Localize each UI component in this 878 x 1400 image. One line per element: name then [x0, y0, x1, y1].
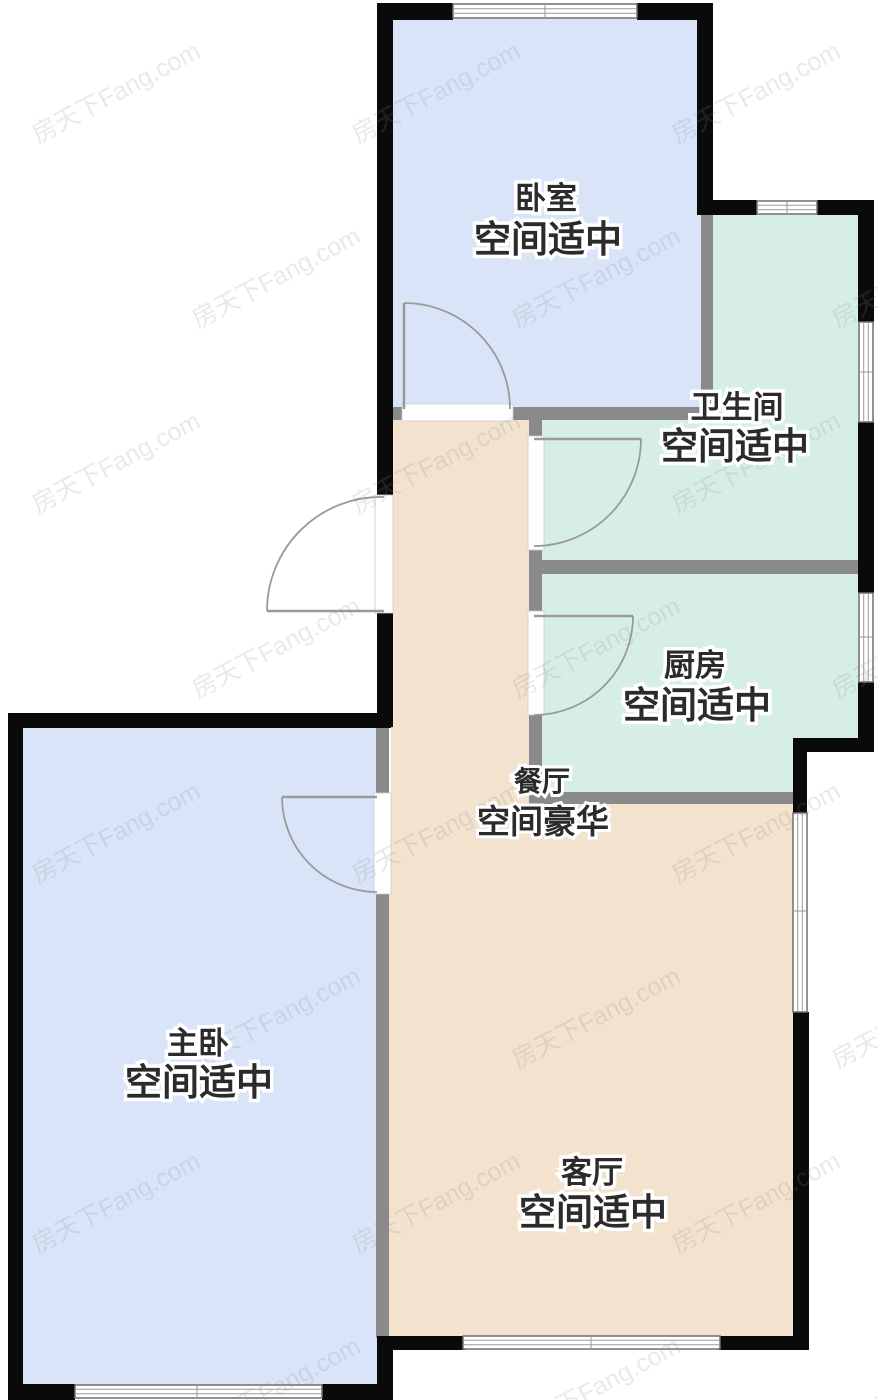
kitchen-label: 厨房	[664, 648, 726, 683]
floor-plan-page: 房天下Fang.com房天下Fang.com房天下Fang.com房天下Fang…	[0, 0, 878, 1400]
living-size-label: 空间适中	[519, 1192, 667, 1233]
watermark-text: 房天下Fang.com	[187, 592, 365, 704]
kitchen-size-label: 空间适中	[623, 685, 771, 726]
master-bedroom-label: 主卧	[167, 1026, 229, 1061]
window-bathroom-top	[757, 201, 817, 214]
living-label: 客厅	[561, 1155, 623, 1190]
bedroom-label: 卧室	[515, 181, 577, 216]
door-entrance	[267, 495, 393, 613]
bathroom-label: 卫生间	[691, 390, 784, 425]
bathroom-size-label: 空间适中	[661, 426, 809, 467]
watermark-text: 房天下Fang.com	[827, 962, 878, 1074]
master-bedroom-size-label: 空间适中	[125, 1062, 273, 1103]
window-living-right	[793, 813, 807, 1012]
dining-size-label: 空间豪华	[477, 803, 609, 840]
dining-label: 餐厅	[514, 766, 570, 797]
floor-plan-canvas: 房天下Fang.com房天下Fang.com房天下Fang.com房天下Fang…	[0, 0, 878, 1400]
room-living-fill	[388, 798, 794, 1337]
watermark-text: 房天下Fang.com	[27, 407, 205, 519]
watermark-text: 房天下Fang.com	[187, 222, 365, 334]
bedroom-size-label: 空间适中	[474, 219, 622, 260]
watermark-text: 房天下Fang.com	[827, 1332, 878, 1400]
window-living-bottom	[463, 1336, 720, 1349]
window-bathroom-right	[859, 322, 873, 422]
room-kitchen-fill	[541, 573, 859, 793]
watermark-text: 房天下Fang.com	[27, 37, 205, 149]
window-bedroom-top	[453, 4, 637, 18]
